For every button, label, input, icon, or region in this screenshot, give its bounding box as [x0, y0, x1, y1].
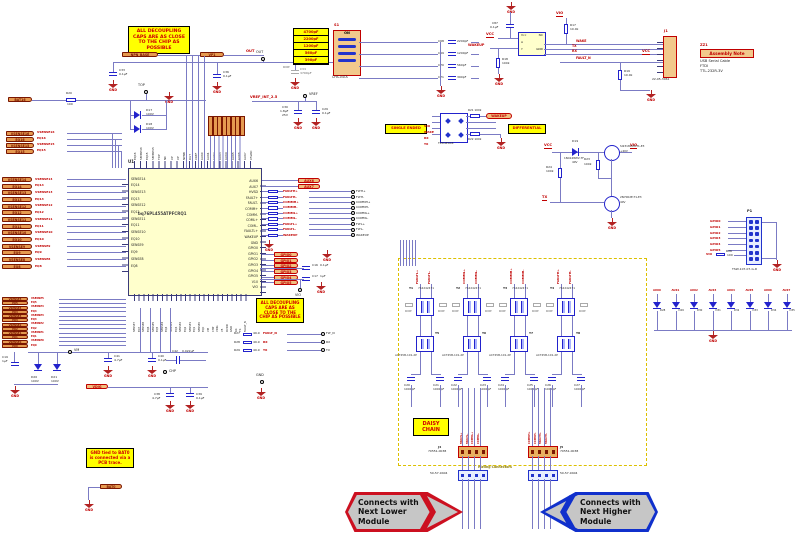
wire [728, 244, 748, 245]
wire [150, 308, 151, 352]
wire [598, 170, 599, 178]
wire [67, 151, 122, 152]
transformer [416, 298, 434, 316]
connector-part: 70551-0038 [428, 450, 446, 453]
pin-label: FAULT+ [246, 197, 258, 201]
net-flag: EQ16 [6, 137, 34, 142]
net-label: AUX1 [672, 290, 680, 293]
net-flag: VSENSE14 [2, 177, 32, 182]
diode-ref: D28 [660, 310, 665, 313]
dip-pos-2[interactable] [338, 45, 356, 48]
choke-part: ACT45B-101-2P [442, 354, 464, 357]
wire [474, 456, 475, 470]
resistor-r24 [558, 168, 562, 178]
pin-label: HVSD [249, 191, 258, 195]
wire [59, 328, 126, 329]
wire [67, 192, 126, 193]
wire [420, 316, 421, 336]
zener-column: AUX3 D31 [706, 290, 725, 330]
wire [550, 456, 551, 470]
net-label: GPIO4 [710, 243, 728, 246]
gnd-symbol: GND [106, 80, 120, 92]
wire [620, 62, 621, 70]
cap-value: 0.1µF [322, 112, 330, 115]
pin-label: V5VAO [250, 134, 256, 160]
assembly-ref: ZZ1 [700, 44, 708, 48]
net-flag: EQ10 [2, 237, 32, 242]
wire [462, 479, 463, 529]
resistor-r17 [564, 24, 568, 34]
wire [287, 350, 321, 351]
cap-value-table: 4700pF2200pF1200pF560pF390pF [293, 28, 329, 65]
wire [432, 122, 440, 123]
net-flag: VSENSE10 [2, 230, 32, 235]
mosfet-q1 [604, 196, 620, 212]
wire [498, 38, 518, 39]
cap-value: 1000pF [574, 388, 585, 391]
banner-next-higher-text: Connects with Next Higher Module [580, 498, 641, 526]
wire [611, 159, 612, 178]
transformer [557, 298, 575, 316]
wire [487, 385, 488, 407]
wire [59, 341, 126, 342]
choke-part: ACT45B-101-2P [395, 354, 417, 357]
net-label: FAULTL+ [416, 262, 419, 284]
wire [598, 178, 612, 179]
net-label: FAULTL- [428, 262, 431, 284]
net-label: AUX7 [783, 290, 791, 293]
wire [67, 232, 126, 233]
dip-pos-4[interactable] [338, 59, 356, 62]
net-label: COMMH+ [283, 201, 309, 204]
pin-label: AUX7 [249, 186, 258, 190]
wire [400, 240, 401, 266]
aux-header-connector[interactable] [208, 116, 244, 136]
net-flag-aux6: AUX6 [298, 178, 320, 183]
wire [140, 308, 141, 352]
capacitor-c34-dnp [291, 70, 299, 74]
diode-ref: D31 [716, 310, 721, 313]
wire [510, 12, 511, 24]
net-label: VSENSE9 [32, 245, 67, 248]
cap-value-option: 390pF [294, 57, 328, 64]
capacitor [407, 377, 415, 381]
tp-label-top: TOP [138, 84, 145, 88]
wire [262, 282, 274, 283]
net-flag: VSENSE16 [6, 131, 34, 136]
connector-part: 70551-0038 [560, 450, 578, 453]
vsense-flags-main: VSENSE14 VSENSE14 EQ14 EQ14 VSENSE13 VSE… [2, 176, 126, 270]
ic-left-pin-labels: SENSE14EQ14SENSE13EQ13SENSE12EQ12SENSE11… [131, 176, 161, 270]
buffer-u2[interactable]: Vcc NC A Y GND [518, 32, 546, 56]
wire [309, 218, 351, 219]
cap-value-option: 4700pF [294, 29, 328, 36]
pin-label: SENSE14 [131, 178, 146, 182]
cap-ref: C42 [172, 350, 178, 353]
testpoint-label: WAKEUP [355, 234, 374, 237]
testpoint-label: RX [325, 341, 340, 344]
wire [572, 352, 573, 374]
cap-value: 0.1µF [119, 73, 127, 76]
dip-switch-chs04ta[interactable]: ON [333, 30, 361, 76]
res-value: 100k [584, 163, 591, 166]
net-label-wake: WAKE [576, 40, 587, 44]
wire [561, 352, 562, 374]
pin-label: EQ11 [131, 224, 140, 228]
connector-j1[interactable] [663, 36, 677, 78]
zener-column: AUX5 D33 [743, 290, 762, 330]
res-value: 49.9 [252, 349, 263, 352]
wire [262, 265, 274, 266]
cap-value: 560pF [456, 64, 471, 67]
wire [88, 487, 100, 488]
net-label: COMML+ [463, 262, 466, 284]
cap-value: 0.1µF [320, 264, 328, 267]
daisy-chain-label: DAISY CHAIN [413, 418, 449, 436]
schematic-sheet: ALL DECOUPLING CAPS ARE AS CLOSE TO THE … [0, 0, 800, 538]
wire [611, 178, 612, 196]
capacitor [454, 377, 462, 381]
dnp-resistor [499, 303, 507, 307]
cap-value: 1µF [2, 360, 8, 363]
wire [67, 179, 126, 180]
resistor-r23 [596, 160, 600, 170]
vsense-flags-upper: VSENSE16 VSENSE16 EQ16 EQ16 VSENSE15 VSE… [6, 130, 122, 154]
net-flag: EQ12 [2, 210, 32, 215]
tp-label-vref: VREF [309, 93, 318, 97]
wire [550, 479, 551, 529]
net-flag: VSENSE15 [6, 143, 34, 148]
pin-label: FAULT- [248, 202, 258, 206]
wire [67, 259, 126, 260]
wire [130, 129, 134, 130]
wire [112, 133, 113, 168]
banner-next-lower-text: Connects with Next Lower Module [358, 498, 419, 526]
series-resistor [243, 349, 252, 352]
gnd-symbol: GND [288, 78, 302, 90]
wire [224, 55, 264, 56]
wire [468, 456, 469, 470]
capacitor-c30 [294, 110, 302, 114]
choke [510, 336, 528, 352]
diode-ref: D19 [572, 140, 578, 143]
tp-label-chp: CHP [169, 370, 176, 374]
net-label: GPIO3 [710, 237, 728, 240]
capacitor-c33 [109, 72, 117, 76]
label-differential: DIFFERENTIAL [508, 124, 546, 134]
wire [260, 268, 304, 269]
wire [440, 42, 441, 86]
net-label: GPIO1 [710, 226, 728, 229]
res-value: 100k [546, 170, 553, 173]
choke-ref: T7 [529, 332, 533, 335]
gnd-symbol: GND [320, 250, 334, 262]
wire [432, 116, 440, 117]
capacitor [530, 377, 538, 381]
wire [300, 280, 301, 288]
net-label: COMML- [283, 217, 309, 220]
net-flag-gpio: GPIO1 [274, 258, 298, 263]
cap-value: 4700pF [300, 71, 312, 75]
wire [532, 479, 533, 529]
net-flag-gpio: GPIO5 [274, 280, 298, 285]
pin-label: GND [251, 242, 258, 246]
cap-value: 0.1µF [490, 26, 498, 29]
net-label-vref-int: VREF_INT_2.5 [250, 96, 277, 100]
connector-j1-part: 22-05-3061 [652, 78, 669, 81]
choke [557, 336, 575, 352]
wire [262, 254, 274, 255]
wire [217, 62, 218, 74]
wire [478, 316, 479, 336]
net-flag-row: EQ12 EQ12 [2, 209, 126, 216]
ic-bottom-pin-stubs [134, 294, 250, 301]
dnp-resistor [533, 303, 541, 307]
net-flag: VSENSE8 [2, 257, 32, 262]
gnd-symbol: GND [504, 2, 518, 14]
wire [471, 78, 479, 79]
wire [59, 337, 126, 338]
ic-left-pin-stubs [122, 178, 128, 272]
capacitor [501, 377, 509, 381]
series-resistor [268, 196, 278, 199]
wire [262, 180, 298, 181]
note-decoupling-2: ALL DECOUPLING CAPS ARE AS CLOSE TO THE … [256, 298, 304, 323]
series-resistor [268, 223, 278, 226]
wire [130, 115, 134, 116]
pin-label: SENSE13 [131, 191, 146, 195]
diode-d17 [134, 111, 141, 119]
gnd-symbol: GND [494, 138, 508, 150]
net-label: EQ8 [32, 265, 67, 268]
series-resistor [268, 217, 278, 220]
pin-label: EQ8 [131, 265, 138, 269]
res-value: 100 [727, 254, 733, 257]
wire [581, 385, 582, 407]
wire [480, 479, 481, 529]
net-flag-row: EQ14 EQ14 [2, 183, 126, 190]
cap-value: 0.1µF [223, 75, 231, 78]
net-label: VSENSE2 [28, 323, 59, 326]
wire [505, 385, 506, 407]
gnd-symbol: GND [145, 366, 159, 378]
wire [67, 145, 122, 146]
dnp-label: DNP [579, 309, 586, 313]
wire [525, 352, 526, 374]
net-flag-row: VSENSE12 VSENSE12 [2, 203, 126, 210]
mating-connectors-label: Mating Connectors [478, 465, 512, 469]
capacitor [448, 40, 456, 44]
wire [552, 374, 562, 375]
power-label-vcc: VCC [642, 50, 650, 55]
dip-pos-3[interactable] [338, 52, 356, 55]
wire [287, 334, 321, 335]
transformer-ref: T4 [550, 287, 554, 290]
ic-right-pin-labels: AUX6AUX7HVSDFAULT+FAULT-COMM+COMM-COML+C… [192, 179, 258, 291]
wire [180, 360, 206, 361]
resistor-r22 [470, 132, 480, 136]
wire [59, 299, 126, 300]
wire [560, 178, 561, 202]
capacitor [548, 377, 556, 381]
p1-gpio-rows: GPIO0 GPIO1 GPIO2 GPIO3 GPIO4 GPIO5 [710, 219, 748, 253]
net-flag-bat16: BAT16 [8, 97, 32, 102]
net-flag-row: VSENSE13 VSENSE13 [2, 189, 126, 196]
wire [728, 227, 748, 228]
zener-column: AUX6 D34 [761, 290, 780, 330]
net-label: VSENSE8 [32, 258, 67, 261]
testpoint-label: COMMH- [355, 206, 374, 209]
dip-pos-1[interactable] [338, 38, 356, 41]
aux-header-wires [210, 136, 243, 168]
wire [620, 80, 621, 90]
wire [262, 186, 298, 187]
capacitor-c40 [148, 358, 156, 362]
uart-row: R28 49.9 RX RX [234, 338, 340, 346]
net-label: AUX4 [727, 290, 735, 293]
pin-label: SENSE11 [131, 218, 146, 222]
wire [252, 101, 316, 102]
wire [550, 388, 551, 446]
cap-value: 1000pF [404, 388, 415, 391]
mosfet-part: SI2318CDS-T1-E3 [620, 145, 644, 148]
pin-label: SENSE12 [131, 204, 146, 208]
connector-p1[interactable] [746, 217, 762, 265]
wire [67, 219, 126, 220]
net-label: EQ9 [32, 251, 67, 254]
wire [478, 352, 479, 374]
wire [561, 316, 562, 336]
capacitor [483, 377, 491, 381]
net-flag-gpio: GPIO0 [274, 252, 298, 257]
switch-part: CHS-04TA [332, 76, 348, 80]
wire [59, 316, 126, 317]
pin-label: SENSE9 [131, 244, 144, 248]
net-flag-row: EQ8 EQ8 [2, 263, 126, 270]
capacitor-c16 [302, 266, 310, 270]
net-label: AUX3 [709, 290, 717, 293]
capacitor-c39 [186, 393, 194, 397]
wire [550, 202, 604, 203]
cap-value: 1000pF [480, 388, 491, 391]
wire [525, 374, 535, 375]
wire [458, 374, 468, 375]
wire [468, 388, 469, 446]
net-label: COMMH+ [510, 262, 513, 284]
wire [432, 134, 440, 135]
net-flag-row: VSENSE14 VSENSE14 [2, 176, 126, 183]
wire [309, 191, 351, 192]
capacitor-c36 [213, 74, 221, 78]
wire [309, 208, 351, 209]
testpoint-gnd [260, 380, 264, 384]
net-flag: VSENSE12 [2, 204, 32, 209]
wire [471, 54, 479, 55]
transformer [510, 298, 528, 316]
wire [468, 479, 469, 529]
tp-label-vm: VM [74, 349, 79, 353]
wire [654, 330, 792, 331]
wire [480, 134, 500, 135]
tp-label-gnd: GND [256, 374, 264, 378]
diode-ref: D33 [753, 310, 758, 313]
dnp-resistor [439, 303, 447, 307]
res-ref: R29 [234, 349, 243, 352]
series-resistor [268, 201, 278, 204]
wire [359, 78, 438, 79]
wire [67, 206, 126, 207]
diode-d18 [134, 125, 141, 133]
zener-column: AUX4 D32 [724, 290, 743, 330]
wire [76, 100, 206, 101]
capacitor-c17 [302, 277, 310, 281]
diode-value: 40V [572, 161, 577, 164]
cap-value: 390pF [456, 76, 471, 79]
wire [560, 62, 663, 63]
net-flag: EQ9 [2, 250, 32, 255]
diode-value: 100V [51, 380, 59, 383]
cap-value: 4.7µF [114, 359, 122, 362]
connector-part: 50-57-9404 [560, 472, 577, 475]
wire [67, 226, 126, 227]
wire [544, 479, 545, 529]
daisy-column: FAULTH+ FAULTH- T4 744242471 DNP DNP T8 … [544, 262, 591, 412]
net-flag-row: EQ0 EQ0 [2, 344, 126, 348]
res-value: 100 [67, 103, 73, 106]
net-label-tx: TX [572, 45, 577, 49]
resistor-r21 [470, 114, 480, 118]
cap-value: 1µF [320, 275, 326, 278]
net-label: WAKEUP [283, 234, 309, 237]
uart-row: R29 49.9 TX TX [234, 346, 340, 354]
wire [59, 307, 126, 308]
wire [359, 66, 438, 67]
net-label: FAULTH- [283, 196, 309, 199]
wire [28, 352, 208, 353]
wire [572, 316, 573, 336]
series-resistor [268, 228, 278, 231]
pin-label: COML- [248, 225, 258, 229]
net-flag-row: VSENSE8 VSENSE8 [2, 256, 126, 263]
wire [298, 101, 299, 110]
capacitor [436, 377, 444, 381]
pin-label: EQ14 [131, 184, 140, 188]
wire [552, 385, 553, 407]
transformer-ref: T2 [456, 287, 460, 290]
net-label: VSENSE16 [34, 131, 67, 134]
wire [316, 101, 317, 110]
res-value: 100k [502, 62, 509, 65]
net-label-tx: TX [542, 196, 547, 201]
wire [59, 333, 126, 334]
pin-label: FAULTL+ [244, 230, 258, 234]
gnd-symbol: GND [210, 82, 224, 94]
gnd-symbol: GND [492, 74, 506, 86]
wire [113, 62, 114, 72]
wire [309, 213, 351, 214]
wire [108, 387, 208, 388]
gnd-symbol: GND [644, 90, 658, 102]
capacitor [448, 52, 456, 56]
gnd-symbol: GND [706, 331, 720, 343]
net-label-wakeup: WAKEUP [468, 44, 484, 48]
net-flag-row: VSENSE10 VSENSE10 [2, 230, 126, 237]
dnp-label: DNP [499, 309, 506, 313]
net-label: VSENSE15 [34, 143, 67, 146]
wire [287, 342, 321, 343]
cap-value: 1000pF [498, 388, 509, 391]
net-flag: VSENSE9 [2, 244, 32, 249]
